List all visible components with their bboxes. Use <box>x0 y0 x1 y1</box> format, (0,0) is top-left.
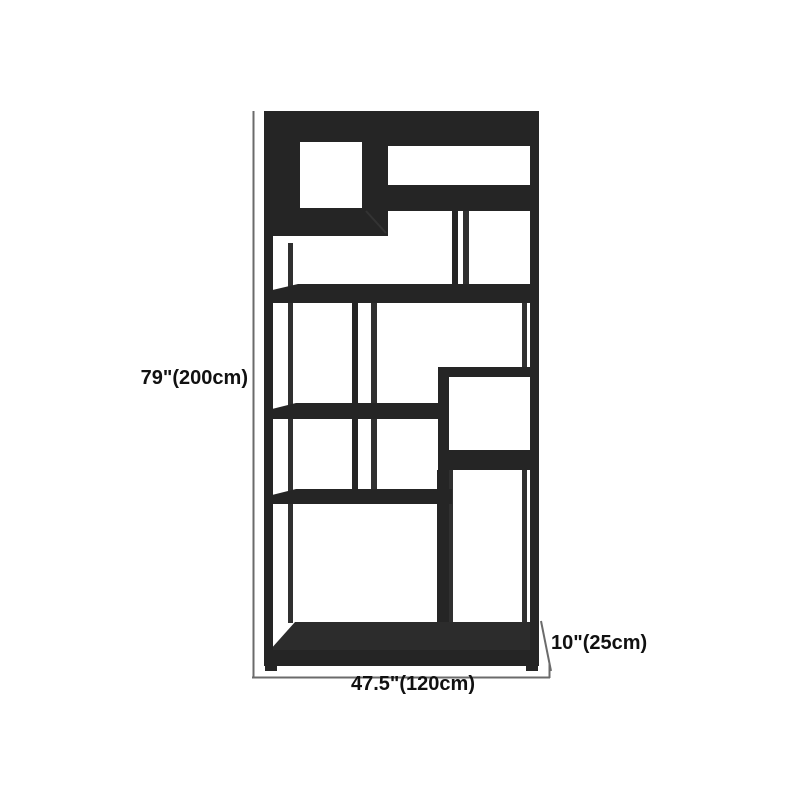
width-dimension-label: 47.5"(120cm) <box>333 673 493 696</box>
depth-dimension-label: 10"(25cm) <box>551 632 681 655</box>
product-dimension-diagram: 79"(200cm) 47.5"(120cm) 10"(25cm) <box>0 0 800 800</box>
height-dimension-label: 79"(200cm) <box>118 367 248 390</box>
depth-dimension-line <box>541 621 551 671</box>
